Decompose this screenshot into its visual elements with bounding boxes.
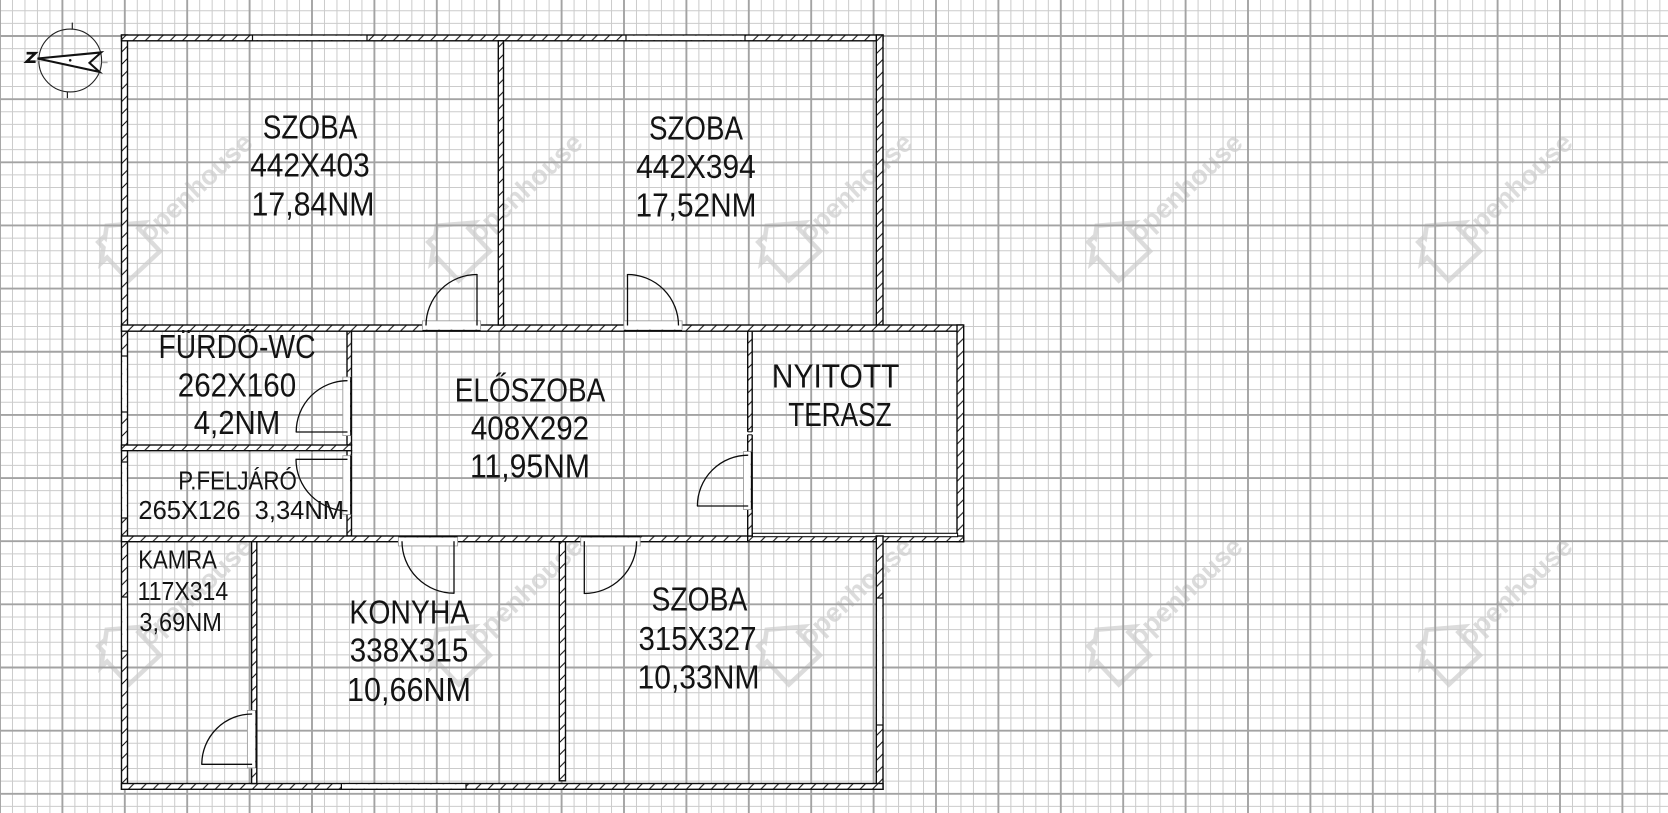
- svg-text:10,66NM: 10,66NM: [347, 672, 471, 709]
- svg-text:17,84NM: 17,84NM: [252, 187, 375, 224]
- svg-text:3,69NM: 3,69NM: [139, 609, 222, 637]
- svg-text:SZOBA: SZOBA: [649, 110, 744, 147]
- svg-text:SZOBA: SZOBA: [652, 582, 748, 619]
- svg-text:SZOBA: SZOBA: [263, 110, 358, 147]
- svg-text:10,33NM: 10,33NM: [638, 660, 760, 697]
- svg-text:262X160: 262X160: [178, 367, 296, 404]
- svg-text:442X403: 442X403: [250, 147, 370, 184]
- svg-text:ELŐSZOBA: ELŐSZOBA: [455, 372, 606, 410]
- svg-text:FÜRDŐ-WC: FÜRDŐ-WC: [159, 328, 316, 366]
- svg-text:442X394: 442X394: [636, 149, 756, 186]
- svg-text:KAMRA: KAMRA: [138, 547, 217, 575]
- svg-text:117X314: 117X314: [138, 578, 229, 606]
- svg-text:TERASZ: TERASZ: [788, 397, 892, 434]
- svg-text:17,52NM: 17,52NM: [636, 188, 757, 225]
- svg-text:11,95NM: 11,95NM: [470, 449, 590, 486]
- svg-text:315X327: 315X327: [639, 621, 757, 658]
- svg-text:338X315: 338X315: [350, 633, 469, 670]
- svg-text:NYITOTT: NYITOTT: [772, 358, 900, 395]
- svg-text:265X126 3,34NM: 265X126 3,34NM: [138, 497, 344, 525]
- svg-text:4,2NM: 4,2NM: [194, 405, 281, 442]
- svg-text:408X292: 408X292: [471, 411, 589, 448]
- svg-text:KONYHA: KONYHA: [349, 594, 469, 631]
- svg-text:P.FELJÁRÓ: P.FELJÁRÓ: [178, 467, 297, 496]
